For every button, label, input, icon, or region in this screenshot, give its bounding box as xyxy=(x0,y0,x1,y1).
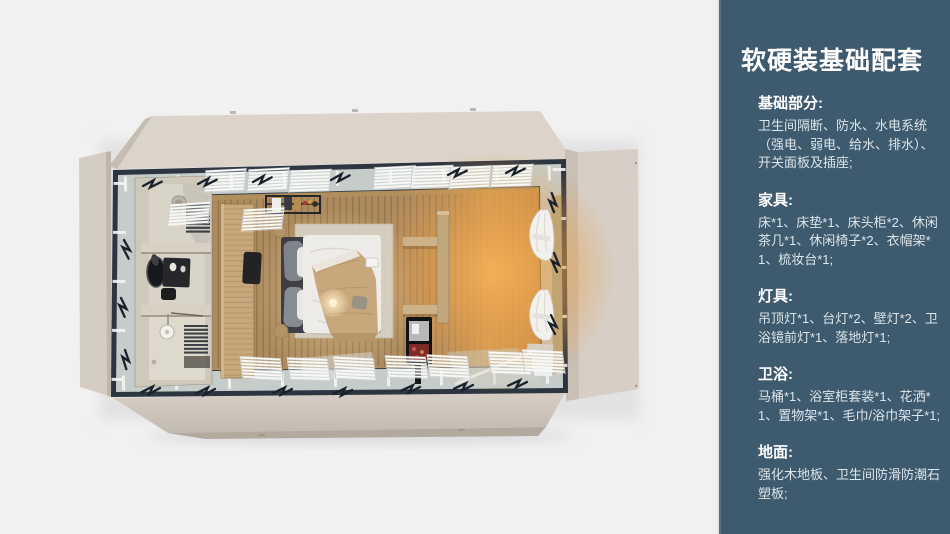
bed xyxy=(274,224,394,342)
section-body: 床*1、床垫*1、床头柜*2、休闲茶几*1、休闲椅子*2、衣帽架*1、梳妆台*1… xyxy=(758,214,941,270)
section-heading: 灯具: xyxy=(758,287,938,307)
section-lighting: 灯具: 吊顶灯*1、台灯*2、壁灯*2、卫浴镜前灯*1、落地灯*1; xyxy=(758,287,938,347)
panel-title: 软硬装基础配套 xyxy=(741,46,950,76)
clothes-pile xyxy=(242,252,262,285)
section-body: 吊顶灯*1、台灯*2、壁灯*2、卫浴镜前灯*1、落地灯*1; xyxy=(758,310,941,347)
section-heading: 基础部分: xyxy=(758,94,938,114)
nightstand-pouf xyxy=(274,324,288,338)
room-render xyxy=(0,0,717,534)
section-heading: 家具: xyxy=(758,191,938,211)
info-panel: 软硬装基础配套 基础部分: 卫生间隔断、防水、水电系统（强电、弱电、给水、排水）… xyxy=(717,0,950,534)
section-bathroom: 卫浴: 马桶*1、浴室柜套装*1、花洒*1、置物架*1、毛巾/浴巾架子*1; xyxy=(758,365,938,425)
section-body: 卫生间隔断、防水、水电系统（强电、弱电、给水、排水）、开关面板及插座; xyxy=(758,117,941,173)
section-body: 马桶*1、浴室柜套装*1、花洒*1、置物架*1、毛巾/浴巾架子*1; xyxy=(758,388,941,425)
section-furniture: 家具: 床*1、床垫*1、床头柜*2、休闲茶几*1、休闲椅子*2、衣帽架*1、梳… xyxy=(758,191,938,270)
shell-bottom-flap xyxy=(113,391,566,439)
section-flooring: 地面: 强化木地板、卫生间防滑防潮石塑板; xyxy=(758,443,938,503)
section-basics: 基础部分: 卫生间隔断、防水、水电系统（强电、弱电、给水、排水）、开关面板及插座… xyxy=(758,94,938,173)
section-heading: 地面: xyxy=(758,443,938,463)
section-heading: 卫浴: xyxy=(758,365,938,385)
shell-left-flap xyxy=(79,151,112,397)
section-body: 强化木地板、卫生间防滑防潮石塑板; xyxy=(758,466,941,503)
panel-content: 基础部分: 卫生间隔断、防水、水电系统（强电、弱电、给水、排水）、开关面板及插座… xyxy=(758,94,938,503)
